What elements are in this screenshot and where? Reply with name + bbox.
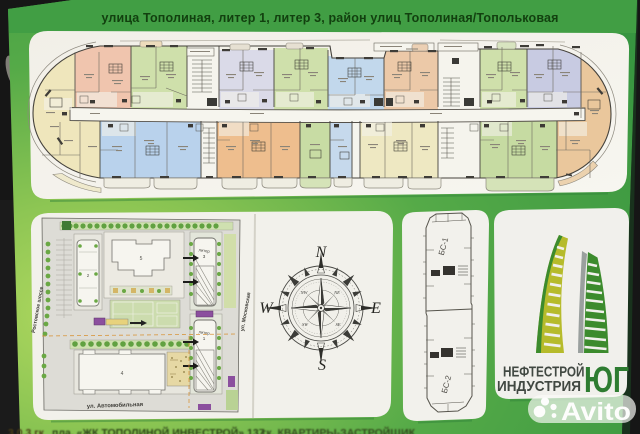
svg-text:SE: SE: [335, 322, 340, 327]
svg-text:W: W: [259, 300, 274, 317]
svg-text:1: 1: [203, 336, 206, 341]
svg-text:Avito: Avito: [561, 398, 631, 426]
svg-text:4: 4: [121, 371, 124, 377]
svg-text:3: 3: [203, 254, 206, 259]
svg-text:NE: NE: [333, 290, 340, 295]
svg-text:N: N: [315, 244, 328, 261]
svg-text:улица Тополиная, литер 1, лите: улица Тополиная, литер 1, литер 3, район…: [101, 11, 558, 25]
svg-text:3,0,3 гк: 3,0,3 гк: [8, 427, 45, 434]
svg-text:5: 5: [140, 256, 143, 262]
svg-text:пла. «ЖК ТОПОЛИНОЙ ИНВЕСТРОЙ»: пла. «ЖК ТОПОЛИНОЙ ИНВЕСТРОЙ» 137: [52, 426, 265, 434]
svg-text:ЮГ: ЮГ: [584, 359, 629, 400]
svg-text:гк. КВАРТИРЫ-ЗАСТРОЙЩИК: гк. КВАРТИРЫ-ЗАСТРОЙЩИК: [262, 426, 416, 434]
svg-text:NW: NW: [300, 290, 309, 295]
svg-text:ИНДУСТРИЯ: ИНДУСТРИЯ: [497, 378, 581, 395]
svg-text:S: S: [318, 357, 326, 374]
svg-text:E: E: [370, 300, 381, 317]
